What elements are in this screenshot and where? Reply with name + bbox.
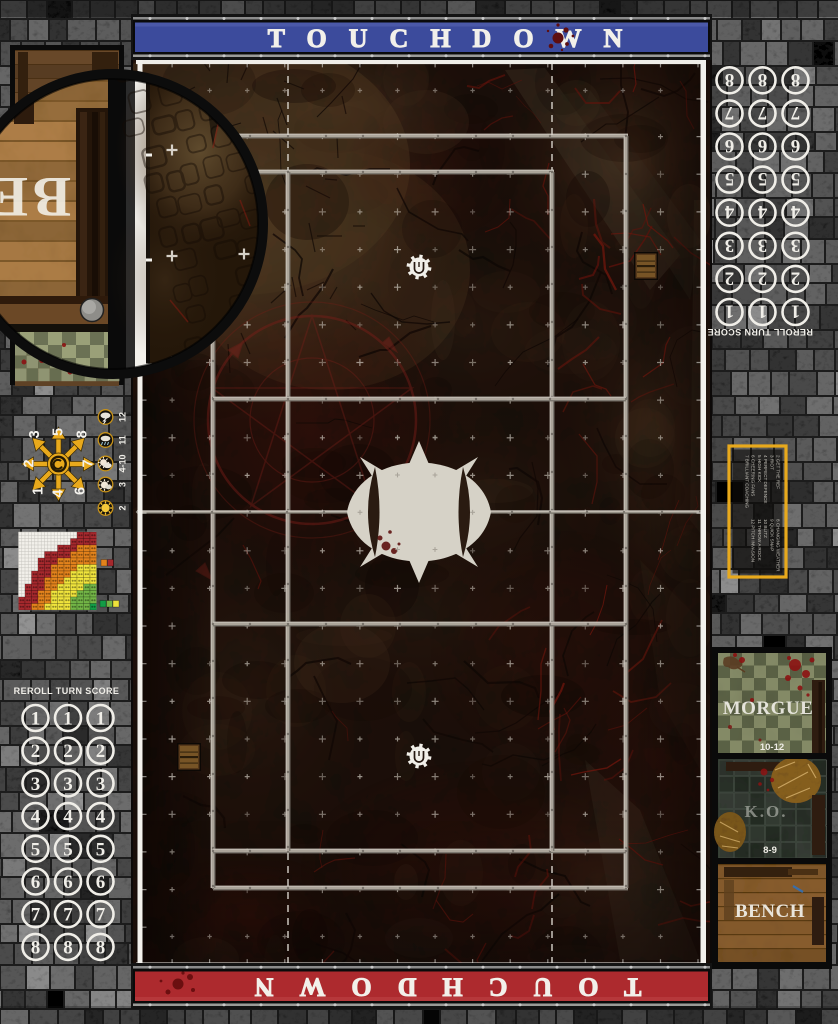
svg-text:REROLL TURN SCORE: REROLL TURN SCORE (14, 686, 120, 696)
svg-text:2: 2 (63, 741, 73, 762)
svg-text:3: 3 (96, 774, 106, 795)
svg-text:7: 7 (81, 459, 97, 467)
svg-text:8: 8 (791, 69, 801, 90)
svg-text:3: 3 (63, 774, 73, 795)
svg-text:2: 2 (31, 741, 41, 762)
svg-text:6: 6 (31, 872, 41, 893)
svg-text:12 PITCH INVASION: 12 PITCH INVASION (751, 519, 756, 562)
svg-text:7: 7 (31, 905, 41, 926)
svg-text:3: 3 (118, 482, 128, 487)
svg-text:8: 8 (31, 937, 41, 958)
svg-text:3: 3 (27, 430, 43, 438)
svg-text:4: 4 (31, 807, 41, 828)
svg-text:8-9: 8-9 (763, 845, 777, 856)
svg-text:1: 1 (725, 301, 735, 322)
svg-text:4: 4 (724, 201, 734, 222)
svg-text:4: 4 (51, 489, 67, 497)
svg-text:8: 8 (758, 69, 768, 90)
svg-text:REROLL TURN SCORE: REROLL TURN SCORE (707, 327, 813, 337)
svg-text:K.O.: K.O. (745, 802, 788, 821)
svg-text:1: 1 (31, 709, 41, 730)
svg-text:1: 1 (63, 709, 73, 730)
svg-text:TOUCHDOWN: TOUCHDOWN (268, 24, 645, 53)
svg-text:4: 4 (790, 201, 800, 222)
svg-text:7: 7 (63, 905, 73, 926)
svg-text:6: 6 (96, 872, 106, 893)
svg-text:5: 5 (725, 168, 735, 189)
svg-text:7 BRILLIANT COACHING: 7 BRILLIANT COACHING (745, 455, 750, 508)
svg-text:6: 6 (791, 135, 801, 156)
svg-text:2: 2 (96, 741, 106, 762)
svg-text:6: 6 (725, 135, 735, 156)
svg-text:5: 5 (31, 839, 41, 860)
svg-text:MORGUE: MORGUE (723, 698, 814, 719)
svg-text:11: 11 (118, 435, 128, 445)
svg-text:5: 5 (63, 839, 73, 860)
svg-text:8: 8 (96, 937, 106, 958)
svg-text:1: 1 (31, 487, 47, 495)
svg-text:7: 7 (790, 102, 800, 123)
svg-text:3: 3 (791, 234, 801, 255)
svg-text:7: 7 (724, 102, 734, 123)
svg-text:6: 6 (63, 872, 73, 893)
svg-text:2: 2 (22, 459, 38, 467)
svg-text:7: 7 (757, 102, 767, 123)
svg-text:3: 3 (758, 234, 768, 255)
svg-text:8 CHANGING WEATHER: 8 CHANGING WEATHER (776, 519, 781, 572)
svg-text:5 HIGH KICK: 5 HIGH KICK (757, 455, 762, 483)
svg-text:10 BLITZ: 10 BLITZ (763, 519, 768, 538)
svg-text:5: 5 (758, 168, 768, 189)
svg-text:BE: BE (0, 165, 71, 228)
svg-text:2: 2 (725, 267, 735, 288)
svg-text:4: 4 (63, 807, 73, 828)
svg-text:2: 2 (791, 267, 801, 288)
svg-text:2: 2 (118, 505, 128, 510)
svg-text:9 QUICK SNAP: 9 QUICK SNAP (769, 519, 774, 551)
svg-text:5: 5 (51, 428, 67, 436)
svg-text:12: 12 (118, 412, 128, 422)
svg-text:7: 7 (96, 905, 106, 926)
svg-text:5: 5 (96, 839, 106, 860)
svg-text:TOUCHDOWN: TOUCHDOWN (229, 973, 642, 1002)
svg-text:2: 2 (758, 267, 768, 288)
svg-text:6: 6 (72, 487, 88, 495)
svg-text:BENCH: BENCH (735, 901, 805, 922)
svg-text:8: 8 (75, 430, 91, 438)
svg-text:4 PERFECT DEFENCE: 4 PERFECT DEFENCE (763, 455, 768, 503)
svg-text:1: 1 (96, 709, 106, 730)
svg-text:6 CHEERING FANS: 6 CHEERING FANS (751, 455, 756, 496)
svg-text:8: 8 (63, 937, 73, 958)
svg-text:1: 1 (758, 301, 768, 322)
svg-text:3: 3 (725, 234, 735, 255)
svg-text:5: 5 (791, 168, 801, 189)
svg-text:8: 8 (725, 69, 735, 90)
svg-text:6: 6 (758, 135, 768, 156)
svg-text:4: 4 (757, 201, 767, 222)
svg-text:4-10: 4-10 (118, 454, 128, 472)
svg-text:3: 3 (31, 774, 41, 795)
svg-text:4: 4 (96, 807, 106, 828)
svg-text:10-12: 10-12 (760, 742, 784, 753)
svg-text:1: 1 (791, 301, 801, 322)
svg-text:11 THROW A ROCK: 11 THROW A ROCK (757, 519, 762, 562)
svg-text:3 RIOT: 3 RIOT (769, 455, 774, 470)
svg-text:2 GET THE REF: 2 GET THE REF (776, 455, 781, 489)
